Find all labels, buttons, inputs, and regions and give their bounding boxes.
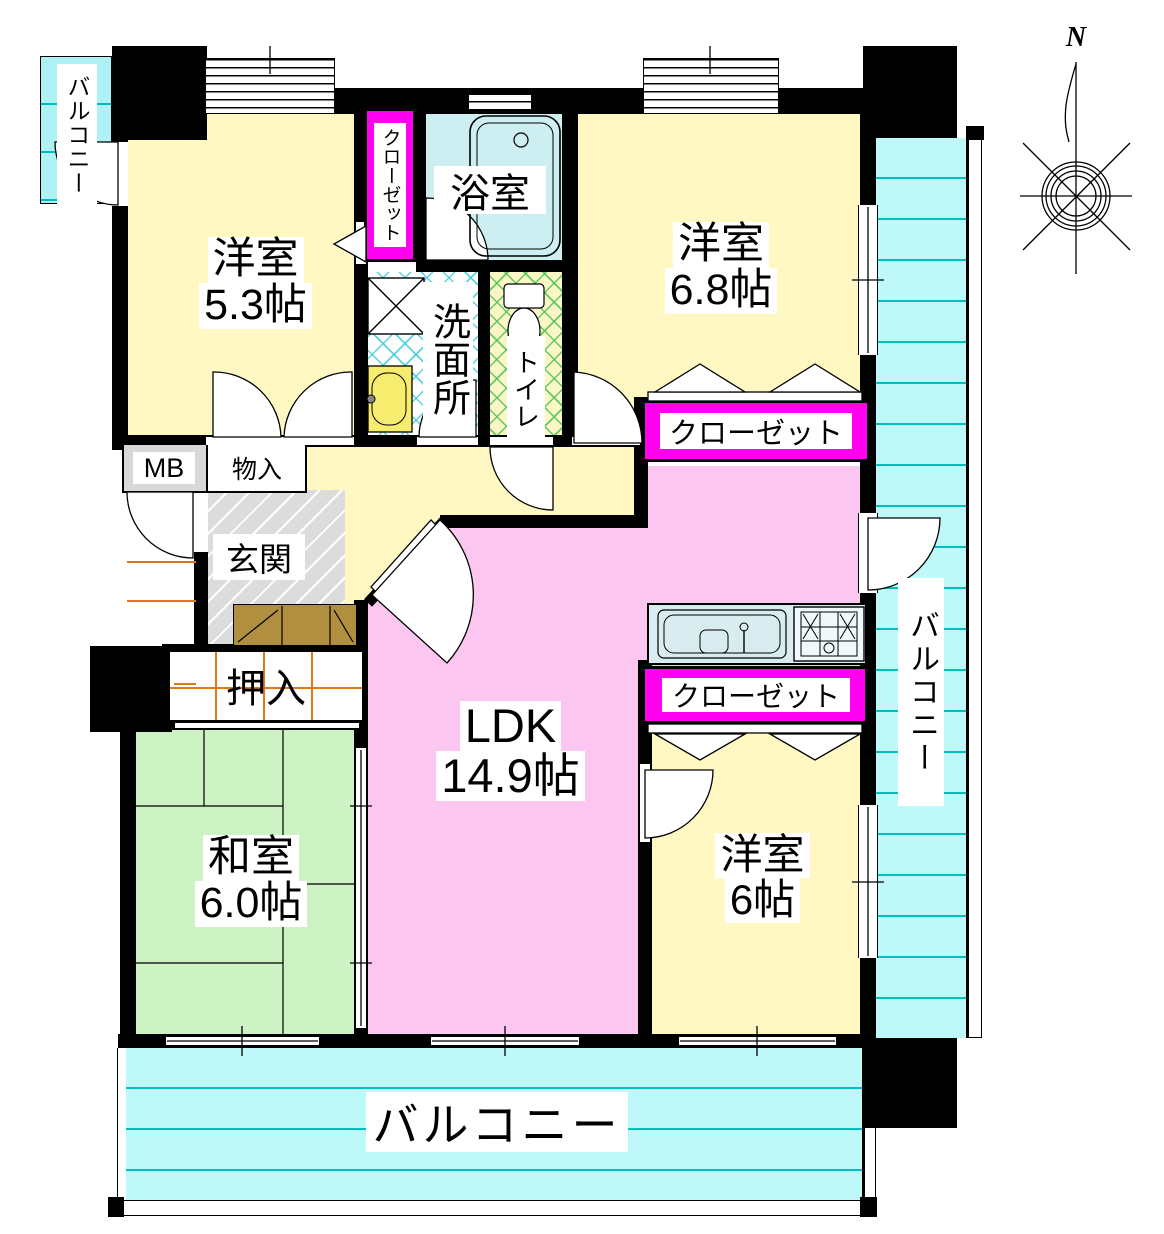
room-bedroom-se-label: 洋室 6帖 xyxy=(695,822,830,934)
compass-north-label: N xyxy=(1054,20,1098,56)
meter-box-label: MB xyxy=(133,452,195,484)
room-name: 洋室 xyxy=(715,833,809,878)
oshiire-label: 押入 xyxy=(216,660,316,710)
room-size: 6.8帖 xyxy=(665,268,778,314)
storage-box-label: 物入 xyxy=(220,452,294,484)
room-washroom-label: 洗面所 xyxy=(423,282,473,436)
room-size: 5.3帖 xyxy=(199,283,312,329)
room-name: LDK xyxy=(460,701,561,751)
room-name: 洋室 xyxy=(673,222,769,268)
room-name: 洋室 xyxy=(208,237,304,283)
compass-icon xyxy=(1020,62,1132,274)
room-ldk-label: LDK 14.9帖 xyxy=(413,688,608,814)
plan-linework xyxy=(0,0,1164,1234)
room-size: 14.9帖 xyxy=(436,751,584,801)
balcony-bottom-label: バルコニー xyxy=(366,1092,628,1152)
balcony-right-label: バルコニー xyxy=(898,578,944,806)
floor-plan: クローゼット クローゼット クローゼット xyxy=(0,0,1164,1234)
room-japanese-label: 和室 6.0帖 xyxy=(170,818,332,944)
room-bedroom-ne-label: 洋室 6.8帖 xyxy=(642,210,800,326)
room-bath-label: 浴室 xyxy=(434,166,546,214)
room-bedroom-nw-label: 洋室 5.3帖 xyxy=(168,220,343,346)
room-name: 和室 xyxy=(203,835,299,881)
room-size: 6.0帖 xyxy=(195,881,308,927)
room-entrance-label: 玄関 xyxy=(213,534,305,580)
room-toilet-label: トイレ xyxy=(507,336,545,442)
balcony-top-left-label: バルコニー xyxy=(57,64,97,206)
room-size: 6帖 xyxy=(725,878,800,923)
